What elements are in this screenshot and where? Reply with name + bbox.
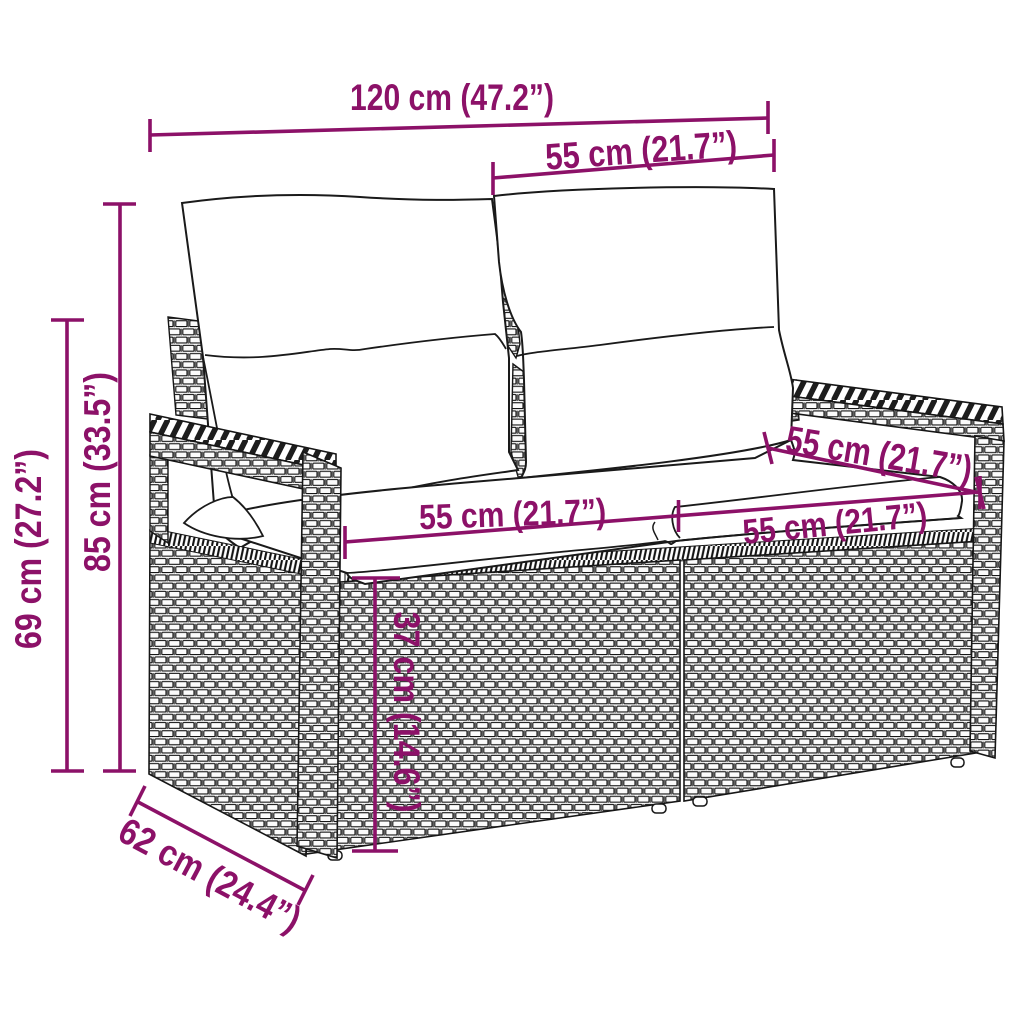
svg-text:37 cm (14.6”): 37 cm (14.6”) bbox=[386, 612, 427, 813]
svg-text:55 cm (21.7”): 55 cm (21.7”) bbox=[418, 492, 606, 538]
svg-text:85 cm (33.5”): 85 cm (33.5”) bbox=[77, 372, 118, 572]
svg-text:120 cm (47.2”): 120 cm (47.2”) bbox=[350, 77, 554, 118]
svg-text:69 cm (27.2”): 69 cm (27.2”) bbox=[8, 449, 49, 649]
